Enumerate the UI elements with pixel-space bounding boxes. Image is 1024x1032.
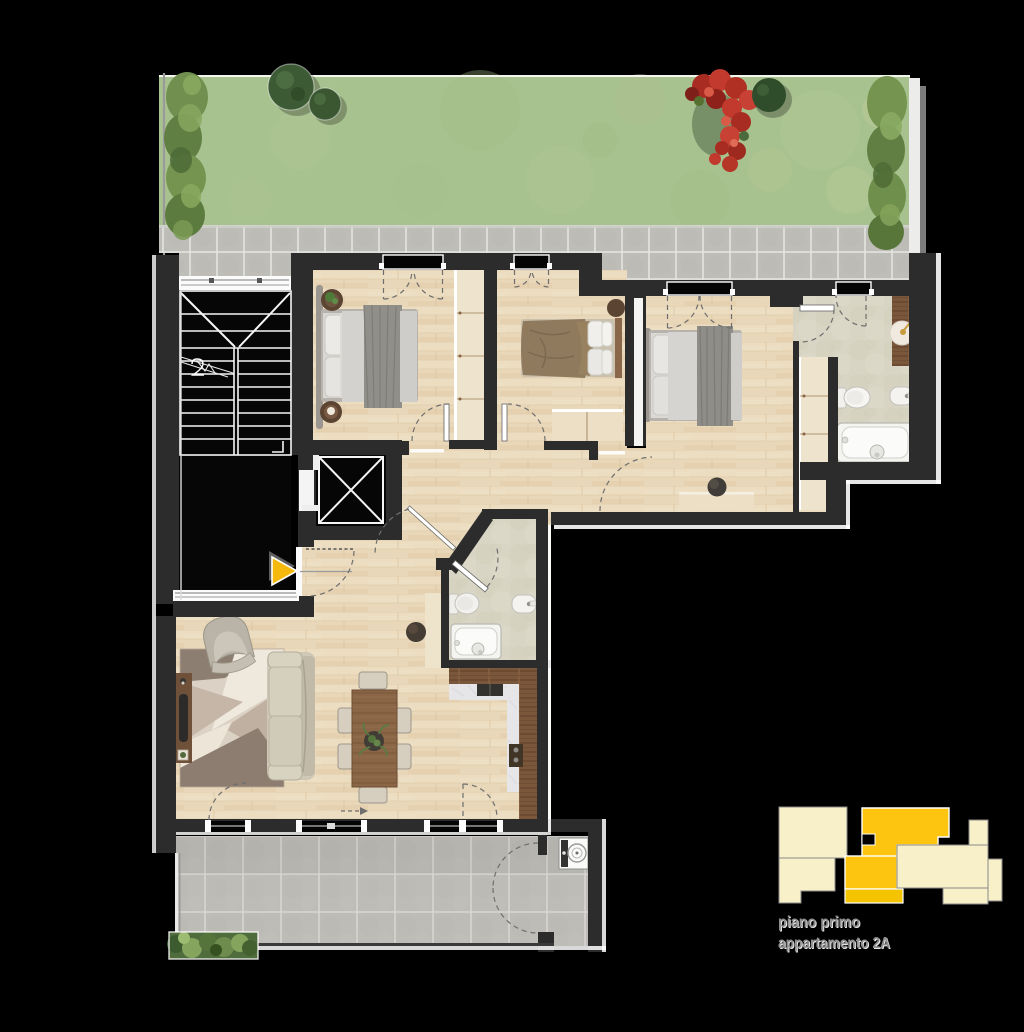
svg-text:piano primo: piano primo bbox=[778, 914, 860, 931]
svg-text:appartamento 2A: appartamento 2A bbox=[778, 935, 890, 952]
